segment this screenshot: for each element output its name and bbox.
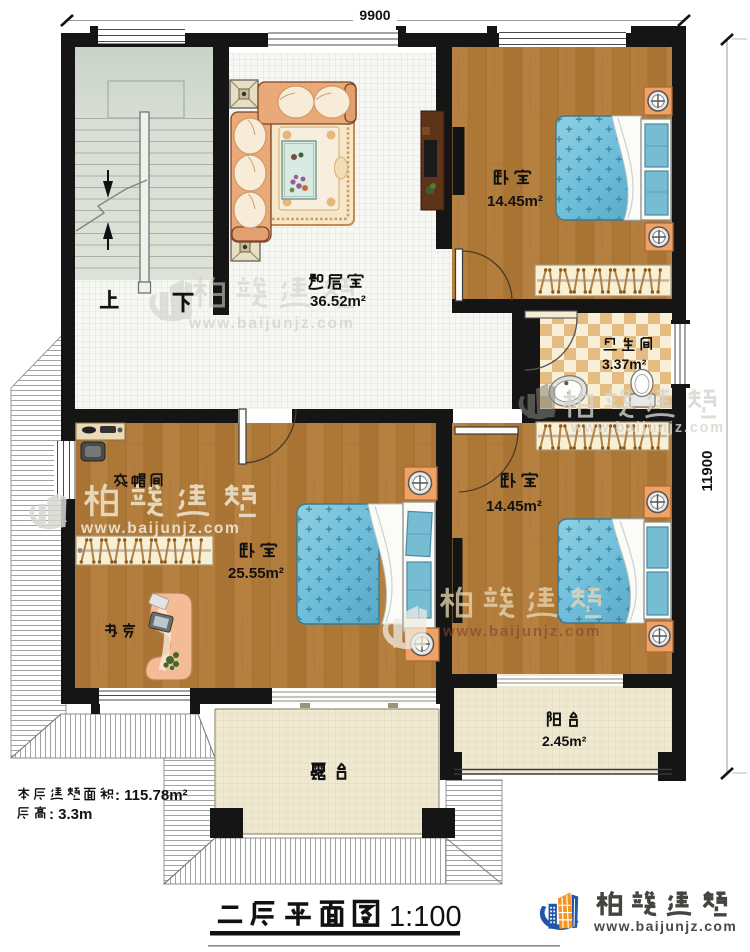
svg-text:36.52m²: 36.52m² bbox=[310, 293, 366, 310]
svg-text:25.55m²: 25.55m² bbox=[228, 565, 284, 582]
svg-text:www.baijunjz.com: www.baijunjz.com bbox=[570, 420, 725, 436]
svg-text:9900: 9900 bbox=[359, 7, 390, 23]
svg-text:1:100: 1:100 bbox=[389, 901, 462, 933]
svg-text:: 115.78m²: : 115.78m² bbox=[115, 787, 188, 804]
svg-text:www.baijunjz.com: www.baijunjz.com bbox=[593, 918, 737, 934]
svg-text:3.37m²: 3.37m² bbox=[602, 356, 647, 372]
svg-text:www.baijunjz.com: www.baijunjz.com bbox=[80, 520, 240, 537]
svg-text:11900: 11900 bbox=[699, 451, 716, 492]
svg-text:www.baijunjz.com: www.baijunjz.com bbox=[188, 315, 355, 332]
svg-text:14.45m²: 14.45m² bbox=[487, 193, 543, 210]
svg-text:2.45m²: 2.45m² bbox=[542, 733, 587, 749]
svg-text:14.45m²: 14.45m² bbox=[486, 498, 542, 515]
svg-text:www.baijunjz.com: www.baijunjz.com bbox=[442, 623, 601, 640]
svg-text:: 3.3m: : 3.3m bbox=[49, 806, 92, 823]
